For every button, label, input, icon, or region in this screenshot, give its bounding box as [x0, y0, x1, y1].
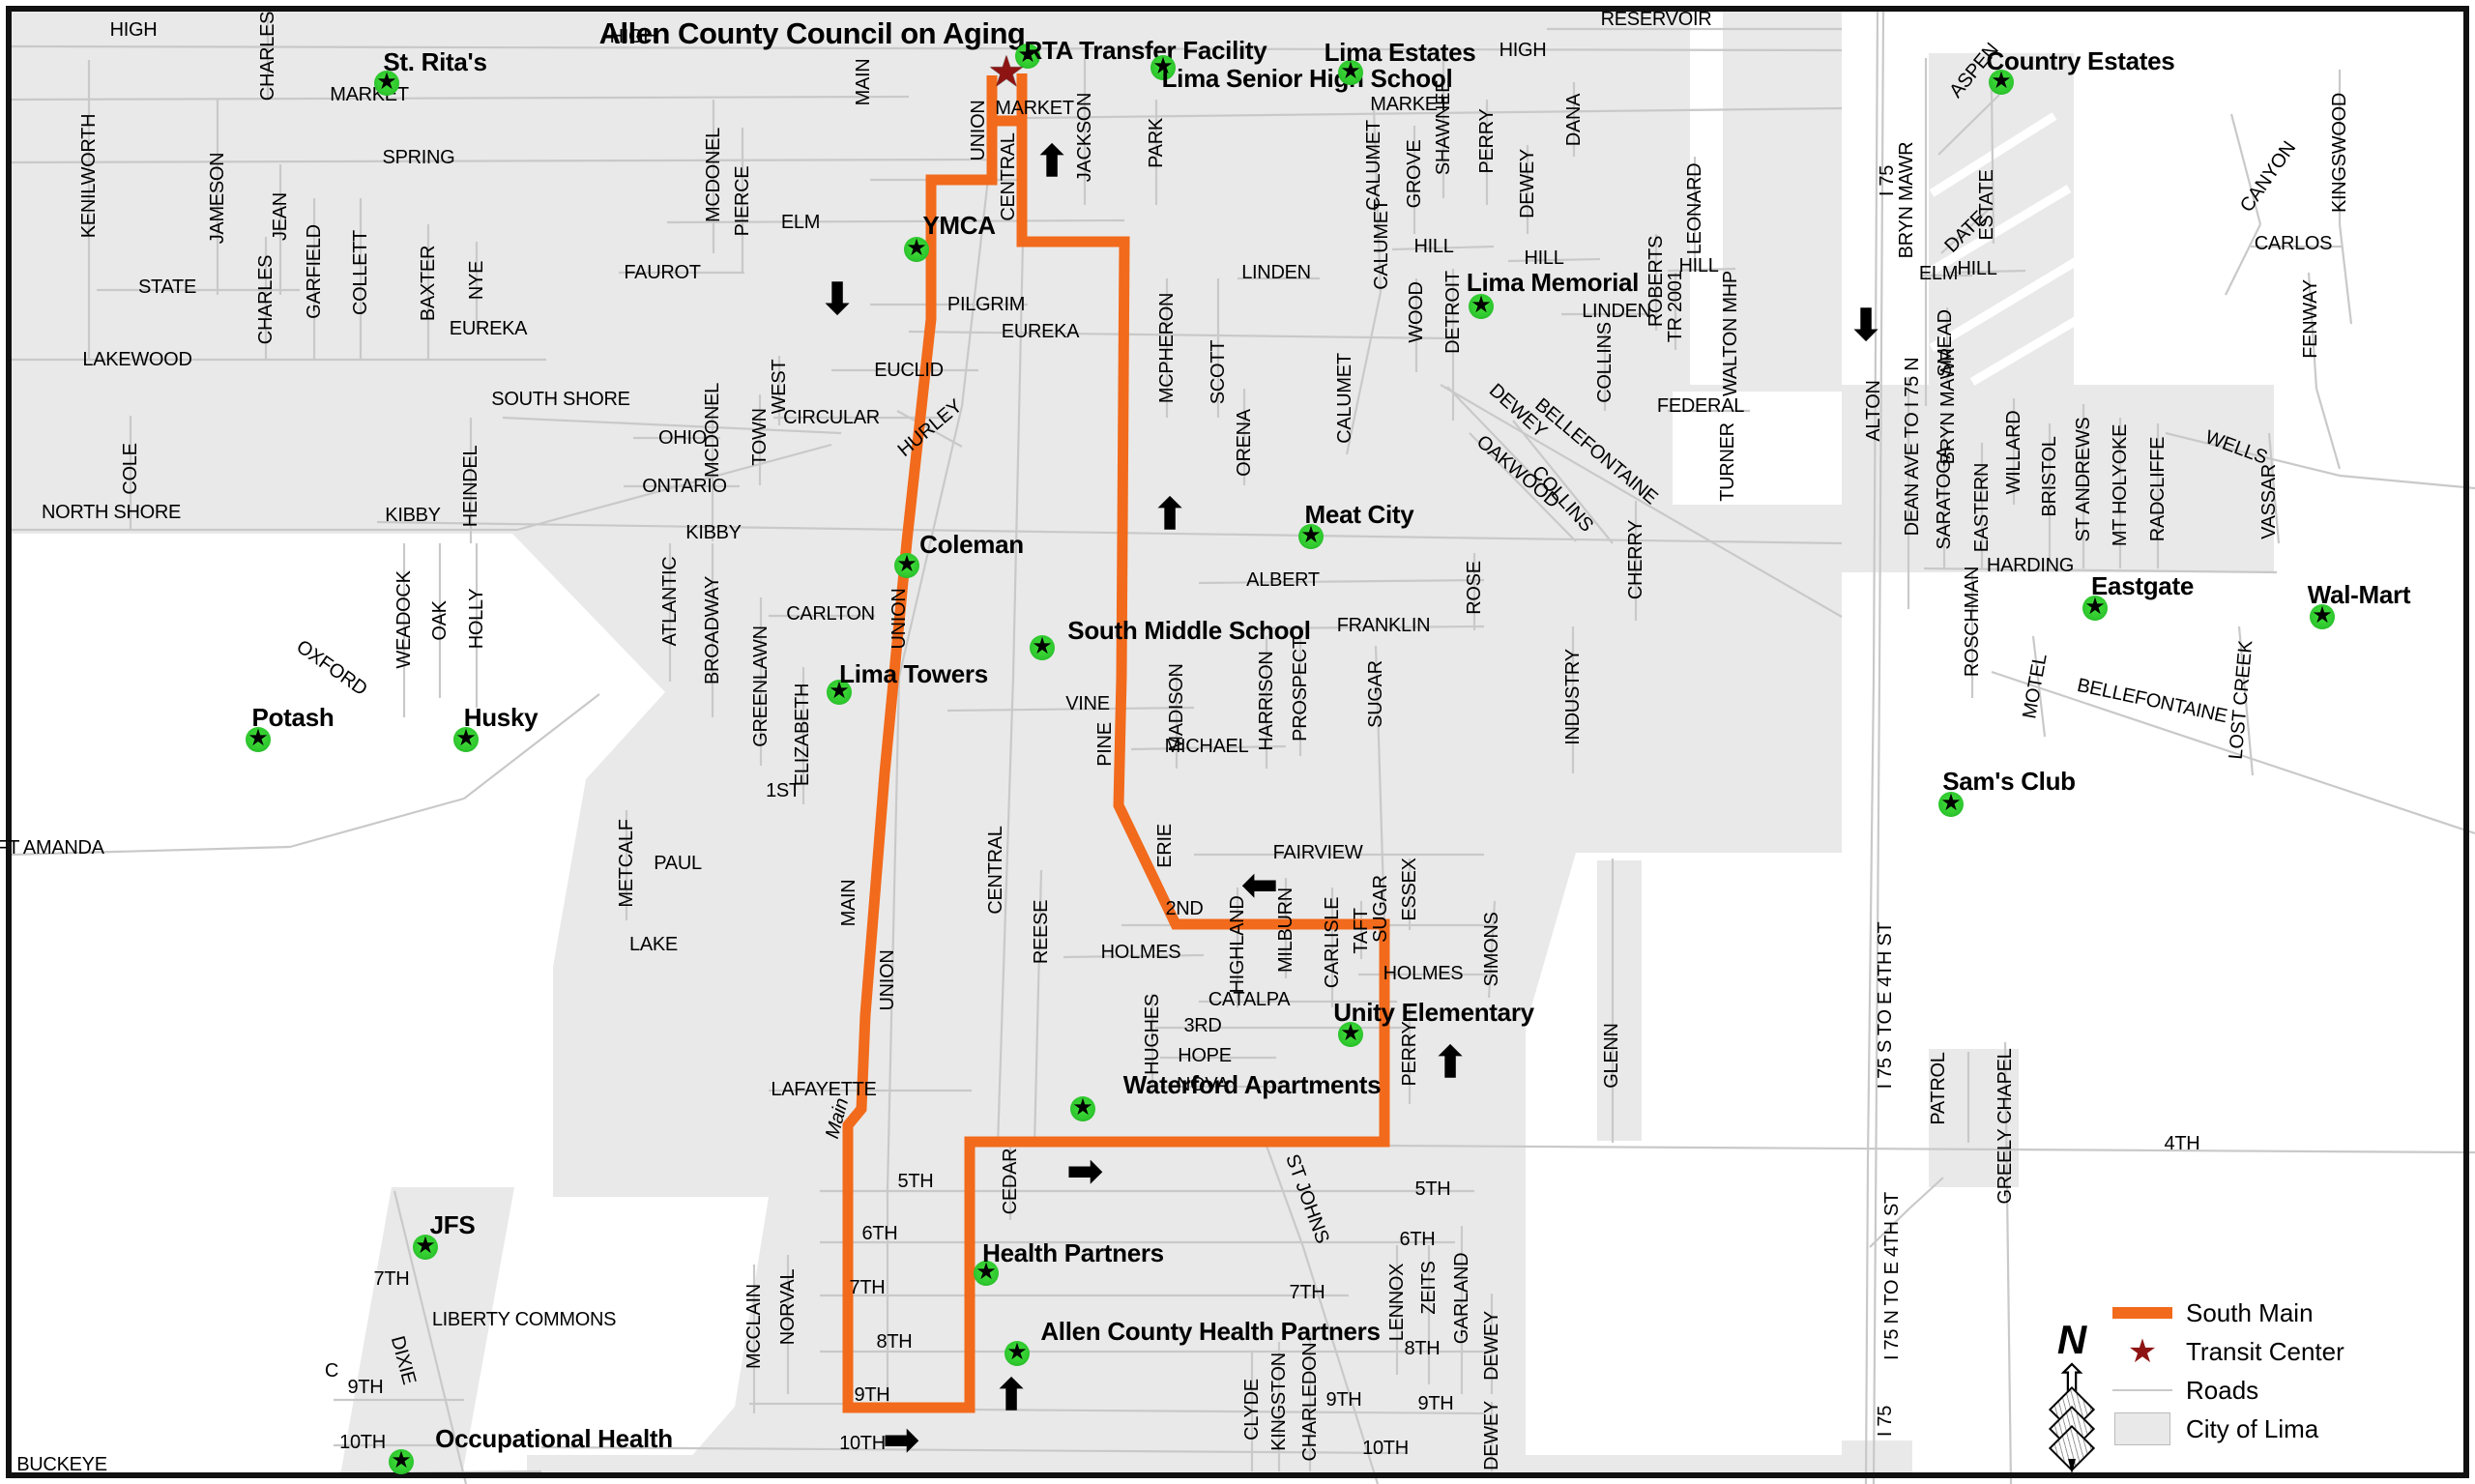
- star-glyph: ★: [391, 1449, 412, 1472]
- street-label: LAFAYETTE: [771, 1080, 876, 1099]
- street-label: 9TH: [1418, 1394, 1454, 1413]
- street-label: 1ST: [766, 781, 801, 800]
- landmark-label: Health Partners: [982, 1240, 1164, 1266]
- landmark-star-icon: ★: [1469, 294, 1494, 319]
- street-label: 6TH: [1400, 1230, 1436, 1249]
- legend-item-route: South Main: [2112, 1294, 2451, 1332]
- legend-item-transit-center: ★ Transit Center: [2112, 1332, 2451, 1371]
- street-label: WOOD: [1407, 281, 1426, 342]
- route-direction-arrow-up-icon: ⬆: [1034, 141, 1070, 184]
- street-label: HOLMES: [1383, 964, 1464, 983]
- street-label: GLENN: [1602, 1023, 1621, 1088]
- street-label: WILLARD: [2004, 411, 2024, 495]
- street-label: ERIE: [1155, 824, 1175, 867]
- street-label: 9TH: [348, 1378, 384, 1397]
- star-glyph: ★: [1470, 294, 1492, 317]
- street-label: PILGRIM: [947, 295, 1025, 314]
- street-label: HARDING: [1987, 556, 2074, 575]
- street-label: PERRY: [1400, 1021, 1419, 1086]
- street-label: I 75 N TO E 4TH ST: [1882, 1192, 1902, 1360]
- landmark-label: Meat City: [1305, 502, 1414, 527]
- street-label: EUCLID: [874, 361, 944, 380]
- street-label: ROSCHMAN: [1963, 567, 1982, 677]
- street-label: NYE: [467, 261, 486, 300]
- star-glyph: ★: [1072, 1096, 1093, 1120]
- street-label: PATROL: [1929, 1052, 1948, 1124]
- landmark-label: Coleman: [919, 532, 1024, 557]
- street-label: C: [325, 1361, 338, 1381]
- landmark-label: Occupational Health: [435, 1426, 673, 1451]
- street-label: DANA: [1564, 94, 1584, 146]
- street-label: MARKET: [1370, 95, 1449, 114]
- landmark-star-icon: ★: [904, 237, 929, 262]
- route-direction-arrow-up-icon: ⬆: [994, 1375, 1030, 1417]
- landmark-star-icon: ★: [894, 553, 919, 578]
- street-label: MCPHERON: [1157, 293, 1177, 403]
- landmark-label: Husky: [464, 705, 539, 730]
- street-label: CHARLEDON: [1300, 1343, 1320, 1462]
- street-label: COLLINS: [1595, 322, 1615, 403]
- legend-item-roads: Roads: [2112, 1371, 2451, 1410]
- street-label: NORTH SHORE: [42, 503, 181, 522]
- street-label: BUCKEYE: [16, 1455, 107, 1474]
- street-label: COLLETT: [351, 230, 370, 315]
- street-label: SARATOGA: [1935, 447, 1954, 550]
- road-line-swatch: [2112, 1389, 2172, 1391]
- street-label: FENWAY: [2301, 279, 2320, 359]
- street-label: TR 2001: [1666, 271, 1685, 343]
- street-label: KINGSWOOD: [2330, 93, 2349, 213]
- street-label: TURNER: [1718, 422, 1737, 502]
- street-label: HOPE: [1178, 1046, 1231, 1065]
- street-label: 5TH: [898, 1172, 934, 1191]
- street-label: I 75 S TO E 4TH ST: [1876, 922, 1895, 1090]
- outside-city-area: [1526, 853, 1842, 1189]
- landmark-label: Waterford Apartments: [1123, 1072, 1382, 1097]
- street-label: STATE: [138, 277, 196, 297]
- landmark-label: Lima Senior High School: [1162, 66, 1453, 91]
- landmark-label: Potash: [252, 705, 335, 730]
- street-label: JEAN: [271, 192, 290, 241]
- street-label: WEADOCK: [394, 570, 414, 668]
- street-label: UNION: [969, 101, 988, 161]
- street-label: HARRISON: [1257, 651, 1276, 750]
- street-label: MARKET: [995, 99, 1074, 118]
- street-label: CLYDE: [1242, 1379, 1262, 1440]
- street-label: 9TH: [1326, 1390, 1362, 1410]
- landmark-label: YMCA: [922, 213, 995, 238]
- street-label: OHIO: [658, 428, 707, 448]
- route-direction-arrow-down-icon: ⬇: [1849, 305, 1884, 347]
- street-label: I 75: [1878, 165, 1897, 196]
- street-label: MILBURN: [1276, 887, 1296, 973]
- route-direction-arrow-left-icon: ⬅: [1242, 864, 1278, 907]
- street-label: NORVAL: [778, 1269, 798, 1346]
- street-label: CHERRY: [1626, 520, 1645, 599]
- legend-item-city: City of Lima: [2112, 1410, 2451, 1448]
- street-label: 5TH: [1415, 1179, 1451, 1199]
- city-of-lima-area: [1597, 860, 1642, 1141]
- street-label: VASSAR: [2259, 464, 2279, 539]
- street-label: ONTARIO: [642, 477, 727, 496]
- street-label: GARLAND: [1452, 1253, 1471, 1345]
- street-label: UNION: [878, 950, 897, 1011]
- street-label: DETROIT: [1443, 271, 1463, 354]
- street-label: CENTRAL: [986, 826, 1005, 914]
- street-label: ELM: [1919, 264, 1958, 283]
- street-label: HIGH: [610, 27, 657, 46]
- street-label: PAUL: [654, 854, 702, 873]
- transit-route-map: Allen County Council on Aging South Main…: [0, 0, 2475, 1484]
- landmark-label: Lima Towers: [839, 661, 988, 686]
- street-label: CARLTON: [786, 604, 875, 624]
- street-label: BROADWAY: [703, 576, 722, 684]
- street-label: CATALPA: [1208, 990, 1291, 1009]
- landmark-star-icon: ★: [389, 1449, 414, 1474]
- street-label: 8TH: [1405, 1339, 1441, 1358]
- street-label: FRANKLIN: [1337, 616, 1431, 635]
- street-label: KIBBY: [385, 506, 440, 525]
- street-label: CALUMET: [1372, 199, 1391, 289]
- street-label: BRYN MAWR: [1897, 142, 1916, 259]
- street-label: CENTRAL: [999, 132, 1018, 220]
- street-label: GARFIELD: [305, 224, 324, 319]
- star-glyph: ★: [1032, 635, 1053, 658]
- street-label: OAK: [430, 600, 450, 640]
- street-label: ESSEX: [1400, 858, 1419, 920]
- route-direction-arrow-up-icon: ⬆: [1433, 1042, 1469, 1085]
- street-label: SCOTT: [1208, 340, 1228, 404]
- street-label: SUGAR: [1371, 875, 1390, 943]
- landmark-label: Unity Elementary: [1333, 1000, 1534, 1025]
- street-label: DEWEY: [1482, 1311, 1501, 1381]
- street-label: PROSPECT: [1291, 637, 1310, 742]
- street-label: LINDEN: [1241, 263, 1311, 282]
- street-label: KIBBY: [685, 523, 741, 542]
- street-label: CARLISLE: [1323, 897, 1342, 988]
- street-label: RESERVOIR: [1601, 10, 1712, 29]
- street-label: DEAN AVE TO I 75 N: [1903, 358, 1922, 537]
- street-label: I 75: [1876, 1406, 1895, 1437]
- landmark-label: Lima Estates: [1325, 40, 1476, 65]
- street-label: PINE: [1095, 722, 1115, 766]
- street-label: CALUMET: [1364, 120, 1383, 210]
- street-label: ALBERT: [1246, 570, 1320, 590]
- street-label: FAUROT: [624, 263, 700, 282]
- street-label: CHARLES: [258, 12, 277, 101]
- city-box-swatch: [2112, 1412, 2172, 1445]
- street-label: RADCLIFFE: [2148, 437, 2168, 541]
- street-label: 7TH: [1290, 1283, 1325, 1302]
- street-label: TAFT: [1352, 908, 1371, 953]
- street-label: GREENLAWN: [751, 626, 771, 746]
- street-label: LAKE: [629, 935, 678, 954]
- street-label: 9TH: [855, 1385, 890, 1405]
- street-label: HILL: [1524, 248, 1563, 268]
- street-label: 10TH: [339, 1433, 386, 1452]
- street-label: LINDEN: [1582, 302, 1651, 321]
- street-label: VINE: [1065, 694, 1109, 713]
- landmark-star-icon: ★: [1005, 1341, 1030, 1366]
- street-label: MCDONEL: [704, 128, 723, 222]
- landmark-label: St. Rita's: [383, 49, 486, 74]
- street-label: LIBERTY COMMONS: [432, 1310, 616, 1329]
- city-of-lima-area: [527, 1455, 1905, 1475]
- street-label: MT HOLYOKE: [2111, 424, 2130, 546]
- landmark-label: Lima Memorial: [1467, 270, 1639, 295]
- street-label: FEDERAL: [1657, 396, 1744, 416]
- street-label: LAKEWOOD: [82, 350, 191, 369]
- street-label: HILL: [1413, 237, 1453, 256]
- landmark-label: Allen County Health Partners: [1040, 1319, 1380, 1344]
- street-label: HILL: [1957, 259, 1996, 278]
- landmark-label: Sam's Club: [1942, 769, 2076, 794]
- street-label: EUREKA: [450, 319, 527, 338]
- street-label: REESE: [1032, 900, 1051, 964]
- route-direction-arrow-right-icon: ➡: [884, 1419, 919, 1462]
- landmark-label: RTA Transfer Facility: [1025, 38, 1267, 63]
- street-label: MAIN: [839, 880, 859, 927]
- landmark-label: South Middle School: [1067, 618, 1310, 643]
- street-label: CARLOS: [2255, 234, 2332, 253]
- star-glyph: ★: [896, 553, 917, 576]
- transit-center-star-icon: ★: [2112, 1335, 2172, 1368]
- street-label: 2ND: [1165, 899, 1203, 918]
- street-label: HOLMES: [1101, 943, 1181, 962]
- street-label: ELIZABETH: [793, 684, 812, 786]
- landmark-star-icon: ★: [1070, 1096, 1095, 1121]
- street-label: WEST: [770, 360, 789, 415]
- route-direction-arrow-up-icon: ⬆: [1152, 494, 1188, 537]
- street-label: SUGAR: [1366, 660, 1385, 728]
- route-direction-arrow-down-icon: ⬇: [820, 278, 856, 321]
- map-title: Allen County Council on Aging: [599, 16, 1026, 51]
- landmark-label: Country Estates: [1987, 48, 2175, 73]
- street-label: BRISTOL: [2040, 436, 2059, 516]
- transit-center-star-icon: ★: [987, 51, 1025, 94]
- street-label: LENNOX: [1387, 1264, 1407, 1341]
- street-label: 10TH: [839, 1434, 886, 1453]
- street-label: ELM: [781, 213, 820, 232]
- street-label: BAXTER: [419, 246, 438, 321]
- street-label: ZEITS: [1419, 1261, 1439, 1314]
- legend: South Main ★ Transit Center Roads City o…: [2112, 1294, 2451, 1448]
- street-label: HOLLY: [467, 589, 486, 650]
- landmark-star-icon: ★: [1030, 635, 1055, 660]
- street-label: 8TH: [877, 1332, 913, 1352]
- street-label: EASTERN: [1972, 463, 1992, 552]
- street-label: 10TH: [1362, 1439, 1409, 1458]
- street-label: DEWEY: [1482, 1401, 1501, 1470]
- street-label: FT AMANDA: [0, 838, 104, 858]
- street-label: PERRY: [1477, 108, 1497, 173]
- street-label: MCCLAIN: [744, 1284, 764, 1369]
- street-label: ATLANTIC: [660, 557, 680, 647]
- north-compass: N ⇧: [2038, 1317, 2106, 1474]
- street-label: 3RD: [1183, 1016, 1221, 1035]
- street-label: GREELY CHAPEL: [1995, 1049, 2015, 1205]
- street-label: 7TH: [850, 1278, 886, 1297]
- street-label: CALUMET: [1335, 353, 1354, 443]
- street-label: CHARLES: [256, 255, 276, 344]
- street-label: HUGHES: [1143, 994, 1162, 1075]
- street-label: CIRCULAR: [783, 408, 880, 427]
- street-label: MICHAEL: [1165, 737, 1249, 756]
- street-label: UNION: [889, 589, 909, 650]
- street-label: DEWEY: [1518, 149, 1537, 218]
- street-label: HIGH: [110, 20, 158, 40]
- street-label: KENILWORTH: [79, 114, 99, 239]
- street-label: HIGHLAND: [1228, 896, 1247, 994]
- street-label: GROVE: [1405, 140, 1424, 209]
- street-label: JACKSON: [1075, 93, 1094, 182]
- street-label: SOUTH SHORE: [491, 390, 629, 409]
- street-label: SPRING: [383, 148, 455, 167]
- street-label: JAMESON: [208, 153, 227, 245]
- landmark-label: JFS: [430, 1212, 476, 1237]
- street-label: 4TH: [2165, 1134, 2200, 1153]
- street-label: 7TH: [374, 1269, 410, 1289]
- street-label: ROBERTS: [1646, 236, 1666, 327]
- street-label: 6TH: [862, 1224, 898, 1243]
- route-direction-arrow-right-icon: ➡: [1067, 1150, 1103, 1193]
- street-label: SIMONS: [1482, 912, 1501, 986]
- star-glyph: ★: [906, 237, 927, 260]
- street-label: EUREKA: [1002, 322, 1079, 341]
- street-label: KINGSTON: [1269, 1353, 1289, 1451]
- street-label: WALTON MHP: [1721, 271, 1740, 396]
- street-label: ROSE: [1465, 561, 1484, 614]
- route-line-swatch: [2112, 1307, 2172, 1319]
- street-label: ALTON: [1864, 380, 1883, 441]
- street-label: COLE: [121, 443, 140, 494]
- street-label: MAIN: [854, 59, 873, 106]
- street-label: FAIRVIEW: [1273, 843, 1363, 862]
- street-label: PARK: [1147, 118, 1166, 168]
- street-label: INDUSTRY: [1563, 649, 1583, 744]
- street-label: CEDAR: [1001, 1149, 1020, 1215]
- street-label: HIGH: [1500, 41, 1547, 60]
- street-label: METCALF: [617, 819, 636, 907]
- street-label: PIERCE: [733, 166, 752, 237]
- street-label: ORENA: [1235, 409, 1254, 477]
- street-label: ST ANDREWS: [2074, 418, 2093, 542]
- street-label: HEINDEL: [461, 446, 480, 528]
- street-label: LEONARD: [1685, 163, 1704, 255]
- landmark-label: Eastgate: [2091, 573, 2194, 598]
- star-glyph: ★: [1006, 1341, 1028, 1364]
- landmark-label: Wal-Mart: [2308, 582, 2410, 607]
- street-label: TOWN: [750, 408, 770, 466]
